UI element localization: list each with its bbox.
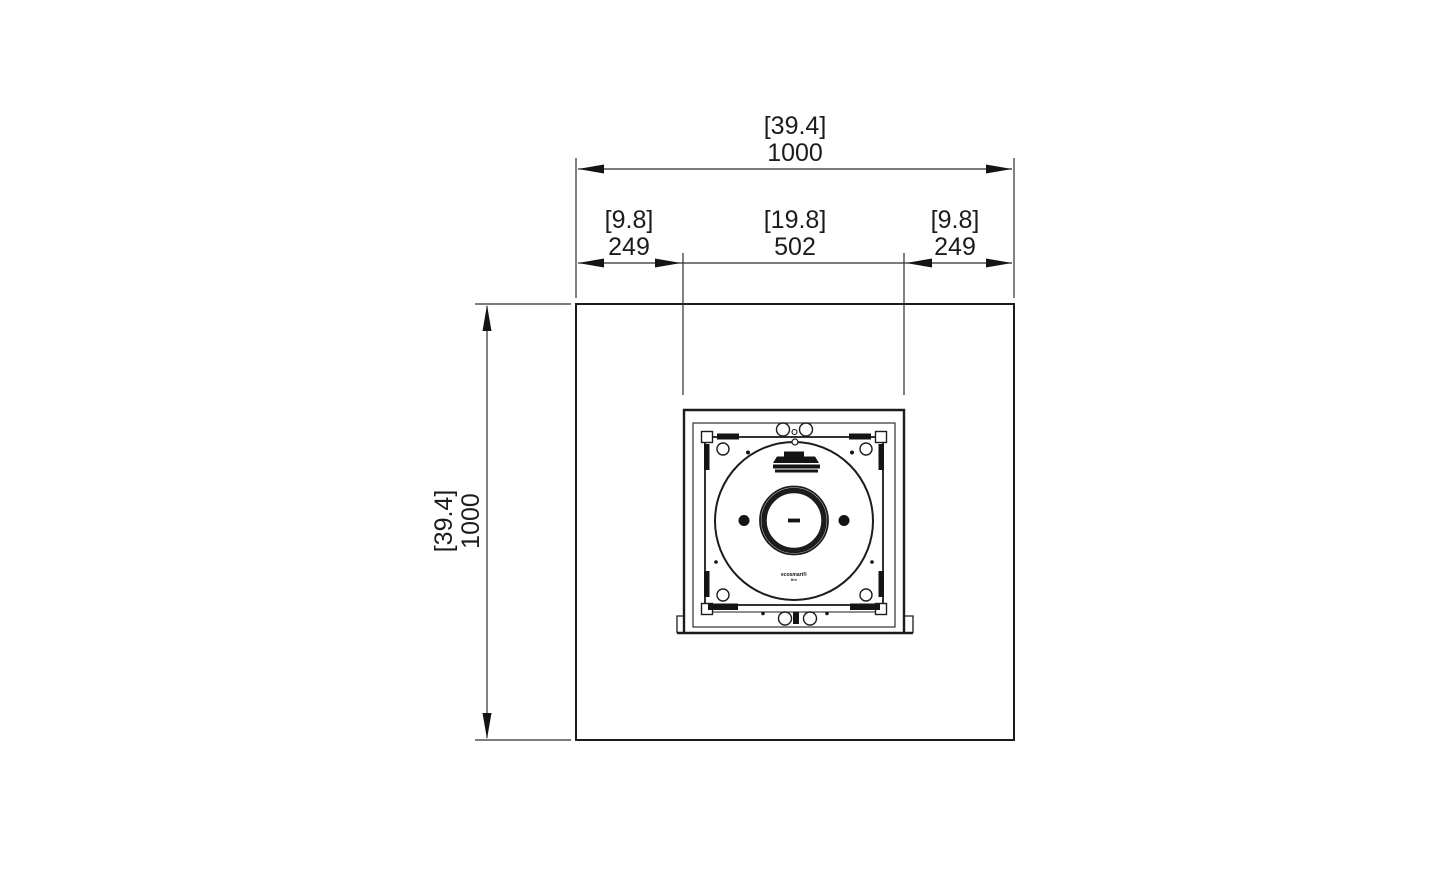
pin-dot-top-right — [850, 451, 854, 455]
arrowhead-right — [986, 165, 1012, 174]
dimension-insets-row: [9.8] 249 [19.8] 502 [9.8] 249 — [578, 206, 1012, 395]
burner-opening-inches-label: [19.8] — [764, 206, 827, 234]
corner-clip-plate-top-left — [702, 432, 713, 443]
dimension-overall-width: [39.4] 1000 — [576, 112, 1014, 298]
bottom-center-tab — [793, 612, 799, 624]
plan-view-drawing: [39.4] 1000 [9.8] 249 [19.8] 502 [9.8] 2… — [0, 0, 1445, 893]
arrowhead-top — [483, 305, 492, 331]
jet-assembly-cap — [784, 452, 804, 457]
right-inset-mm-label: 249 — [934, 233, 976, 261]
corner-clip-side-bottom-right — [879, 571, 885, 597]
jet-assembly-bar-2 — [775, 470, 818, 473]
arrowhead-right-inset-outer — [986, 259, 1012, 268]
overall-width-inches-label: [39.4] — [764, 112, 827, 140]
overall-width-mm-label: 1000 — [767, 139, 823, 167]
top-center-notch — [792, 430, 797, 435]
corner-clip-plate-top-right — [876, 432, 887, 443]
top-latch-hole-left — [777, 423, 790, 436]
pin-dot-top-left — [746, 451, 750, 455]
brand-logo-line2: fire — [791, 578, 797, 582]
corner-clip-side-top-right — [879, 444, 885, 470]
bottom-edge-dot-right — [825, 612, 829, 616]
arrowhead-left — [578, 165, 604, 174]
corner-screw-hole-bottom-right — [860, 589, 872, 601]
left-inset-inches-label: [9.8] — [605, 206, 654, 234]
corner-clip-bar-top-right — [849, 434, 871, 440]
arrowhead-left-inset-inner — [655, 259, 681, 268]
corner-screw-hole-top-right — [860, 443, 872, 455]
burner-assembly: ecosmart® fire — [677, 410, 913, 633]
arrowhead-left-inset-outer — [578, 259, 604, 268]
burner-center-slot — [788, 519, 800, 523]
bottom-latch-hole-right — [804, 612, 817, 625]
top-latch-hole-right — [800, 423, 813, 436]
burner-opening-mm-label: 502 — [774, 233, 816, 261]
jet-assembly-bar-1 — [773, 465, 820, 469]
corner-clip-side-top-left — [704, 444, 710, 470]
corner-clip-side-bottom-left — [704, 571, 710, 597]
overall-height-mm-label: 1000 — [457, 493, 485, 549]
corner-clip-bar-bottom-right — [850, 604, 880, 611]
ignition-dot-right — [839, 515, 850, 526]
brand-logo-line1: ecosmart® — [781, 571, 807, 578]
corner-screw-hole-bottom-left — [717, 589, 729, 601]
arrowhead-right-inset-inner — [906, 259, 932, 268]
left-inset-mm-label: 249 — [608, 233, 650, 261]
ignition-dot-left — [739, 515, 750, 526]
technical-drawing-page: [39.4] 1000 [9.8] 249 [19.8] 502 [9.8] 2… — [0, 0, 1445, 893]
corner-clip-bar-bottom-left — [708, 604, 738, 611]
corner-screw-hole-top-left — [717, 443, 729, 455]
pin-dot-bottom-right — [870, 560, 874, 564]
pin-dot-bottom-left — [714, 560, 718, 564]
jet-assembly-body — [773, 457, 819, 464]
corner-clip-bar-top-left — [717, 434, 739, 440]
dimension-overall-height: [39.4] 1000 — [430, 304, 571, 740]
overall-height-inches-label: [39.4] — [430, 490, 458, 553]
bottom-edge-dot-left — [761, 612, 765, 616]
right-inset-inches-label: [9.8] — [931, 206, 980, 234]
burner-plate-top-nub — [792, 439, 798, 445]
arrowhead-bottom — [483, 713, 492, 739]
bottom-latch-hole-left — [779, 612, 792, 625]
